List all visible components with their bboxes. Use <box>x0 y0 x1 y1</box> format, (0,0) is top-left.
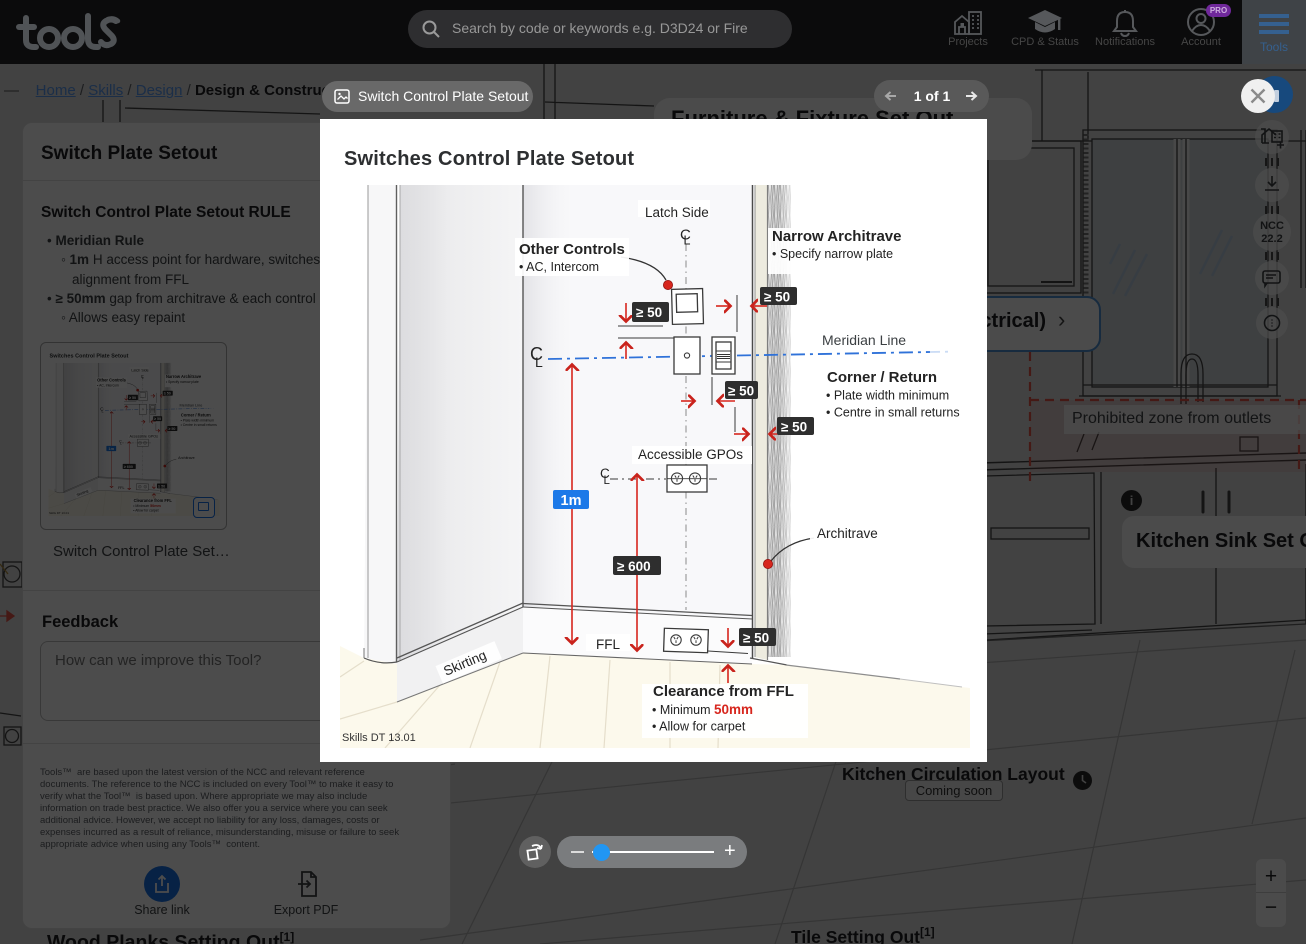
svg-text:Accessible GPOs: Accessible GPOs <box>638 447 743 462</box>
svg-text:1m: 1m <box>561 493 582 509</box>
svg-text:Meridian Line: Meridian Line <box>822 332 906 348</box>
svg-text:L: L <box>604 475 611 487</box>
svg-text:≥ 50: ≥ 50 <box>743 631 769 646</box>
svg-text:Clearance from FFL: Clearance from FFL <box>653 683 794 700</box>
svg-text:L: L <box>684 234 691 248</box>
svg-text:• AC, Intercom: • AC, Intercom <box>519 260 599 274</box>
svg-text:• Centre in small returns: • Centre in small returns <box>826 406 960 420</box>
svg-text:≥ 50: ≥ 50 <box>728 384 754 399</box>
svg-text:≥ 50: ≥ 50 <box>764 290 790 305</box>
svg-text:≥ 600: ≥ 600 <box>617 559 651 574</box>
svg-text:• Allow for carpet: • Allow for carpet <box>652 720 746 734</box>
svg-text:Other Controls: Other Controls <box>519 241 625 258</box>
svg-text:Architrave: Architrave <box>817 526 878 541</box>
svg-text:• Minimum 50mm: • Minimum 50mm <box>652 702 753 717</box>
svg-text:• Plate width minimum: • Plate width minimum <box>826 389 949 403</box>
svg-text:≥ 50: ≥ 50 <box>781 420 807 435</box>
svg-text:Skills DT 13.01: Skills DT 13.01 <box>342 732 416 744</box>
svg-text:• Specify narrow plate: • Specify narrow plate <box>772 247 893 261</box>
svg-text:≥ 50: ≥ 50 <box>636 305 662 320</box>
svg-text:Latch Side: Latch Side <box>645 205 709 220</box>
svg-text:Corner / Return: Corner / Return <box>827 369 937 386</box>
svg-text:Narrow Architrave: Narrow Architrave <box>772 228 902 245</box>
svg-text:FFL: FFL <box>596 637 620 652</box>
svg-text:L: L <box>535 354 543 370</box>
